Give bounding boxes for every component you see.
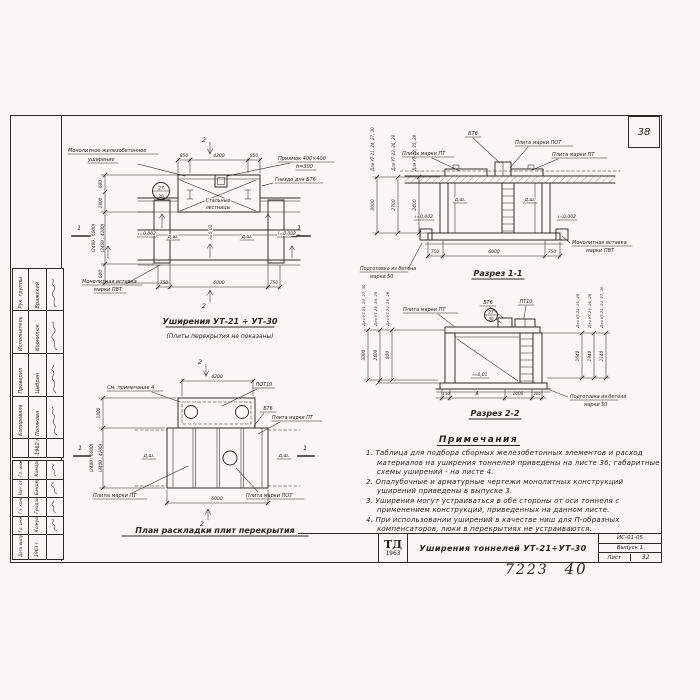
label-pit: Приямок 400×400: [278, 156, 326, 162]
label-socket: Гнездо для БТ6: [275, 177, 316, 183]
label-base-line1: Подготовка из бетона: [570, 394, 626, 400]
dim-left-paren-2: (3400 ; 4200): [100, 223, 105, 252]
dim-bot-A: А: [474, 391, 479, 397]
layout-dimensions: 4200 1800 (2400 ; 6000) (3400 ; 4200) 60…: [89, 374, 270, 505]
signature-scribble: [47, 397, 63, 440]
notes-heading: Примечания: [366, 427, 591, 446]
label-pt-many: Плиты марки ПТ: [93, 493, 137, 499]
stamp-empty-cell: [47, 439, 63, 457]
label-stairs-line2: лестницы: [205, 206, 231, 211]
section1-structure: [400, 162, 620, 244]
td-logo-letters: ТД: [384, 539, 402, 550]
dim-height-tunnels-1: Для УТ-21, 24, 27, 30: [370, 127, 375, 172]
dim-left-600-top: 600: [98, 180, 103, 188]
label-insert-line2: марки ПВТ: [94, 287, 123, 293]
label-widening-line1: Монолитное железобетонное: [68, 148, 146, 154]
label-insert-line2: марки ПВТ: [586, 248, 615, 254]
note-item-3: 3. Уширения могут устраиваться в обе сто…: [366, 497, 662, 516]
dim-left-paren-1: (2400 ; 6000): [89, 443, 94, 472]
section-1-marker-right: 1: [297, 224, 301, 232]
dim-left-2: 2400: [373, 349, 378, 360]
section1-title-group: Разрез 1-1: [472, 269, 524, 279]
label-joint-right: д.ш.: [241, 235, 253, 240]
sheet-number-row: Лист 32: [599, 552, 661, 562]
dim-right-tunnels-1: Для УТ-22, 25, 28: [575, 293, 580, 329]
stamp-table-lower: Дата выпуска Гл. инж. пр. Гл. конструкто…: [12, 460, 64, 560]
stamp-role: Гл. инженер: [13, 461, 28, 480]
label-joint-left: д.ш.: [167, 235, 179, 240]
plan-widening-drawing: 27 30 850 4200 850 600 1800 (2400 ; 6000…: [60, 118, 365, 348]
stamp-table-upper: Копировала Проверил Исполнитель Рук. гру…: [12, 268, 64, 458]
dim-left-3: 800: [385, 351, 390, 359]
label-pt-many: Плиты марки ПТ: [402, 151, 446, 157]
label-widening-line2: уширение: [87, 157, 115, 163]
dim-left-paren-1: (2400 ; 6000): [91, 223, 96, 252]
label-joint-right: д.ш.: [524, 198, 536, 203]
sheet-number: 32: [630, 554, 662, 561]
stamp-role: Копировала: [13, 397, 28, 440]
layout-structure: [135, 398, 300, 488]
section-1-1-drawing: Для УТ-21, 24, 27, 30 Для УТ-23, 26, 29 …: [360, 113, 660, 288]
label-joint-left: д.ш.: [143, 454, 155, 459]
stamp-name: Комаровский: [29, 461, 45, 480]
label-pot10: ПОТ10: [256, 382, 272, 388]
section-2-marker-top: 2: [198, 358, 202, 366]
label-joint-left: д.ш.: [454, 198, 466, 203]
detail-ref-top: 27: [158, 186, 164, 192]
dim-s1-6000: 6000: [488, 249, 500, 255]
label-joint-right: д.ш.: [278, 454, 290, 459]
label-insert-line1: Монолитная вставка: [82, 279, 137, 285]
signature-scribble: [47, 517, 63, 536]
page-number: 40: [565, 560, 588, 578]
section-1-marker-right: 1: [303, 444, 307, 452]
label-pot: Плита марки ПОТ: [246, 493, 293, 499]
dim-height-2: 2700: [391, 199, 397, 211]
stamp-name: Гродзинский: [29, 498, 45, 517]
dim-height-tunnels-2: Для УТ-23, 26, 29: [391, 135, 396, 172]
section-1-marker-left: 1: [78, 444, 82, 452]
note-item-4: 4. При использовании уширений в качестве…: [366, 516, 662, 535]
dim-height-1: 3000: [370, 199, 376, 211]
drawing-sheet: 38 27 30: [0, 0, 700, 700]
plan-title-group: Уширения УТ-21 ÷ УТ-30 (Плиты перекрытия…: [163, 317, 278, 340]
section-2-2-drawing: 27 30 Для УТ-21, 24, 27, 30 Для УТ-23, 2…: [360, 288, 660, 428]
stamp-name: Бандер: [29, 480, 45, 499]
section2-detail-reference: 27 30: [485, 309, 502, 324]
dim-bot-750-left: 750: [160, 280, 168, 285]
signature-scribble: [47, 354, 63, 397]
notes-block: Примечания 1. Таблица для подбора сборны…: [366, 427, 662, 535]
dim-bot-150: 150: [442, 391, 450, 396]
dim-bot-6000: 6000: [213, 280, 225, 286]
signature-scribble: [47, 480, 63, 499]
note-item-2: 2. Опалубочные и арматурные чертежи моно…: [366, 478, 662, 497]
label-pt10: ПТ10: [520, 299, 533, 305]
layout-section-markers: 2 2 1 1: [74, 358, 314, 528]
label-pt: Плита марки ПТ: [403, 307, 446, 313]
stamp-name: Цыбрин: [29, 354, 45, 397]
stamp-role: Проверил: [13, 354, 28, 397]
stamp-role: Нач. отдела: [13, 480, 28, 499]
label-slope-left: i=0,002: [415, 214, 433, 220]
section2-title: Разрез 2-2: [471, 409, 520, 418]
label-insert-line1: Монолитная вставка: [572, 240, 627, 246]
stamp-name: Полякова: [29, 397, 45, 440]
stamp-date-label: Дата выпуска: [13, 535, 28, 559]
label-slope: i=0,01: [472, 372, 487, 378]
td-logo: ТД 1963: [379, 534, 408, 562]
plan-subtitle: (Плиты перекрытия не показаны): [166, 333, 273, 340]
dim-bot-750-right: 750: [270, 280, 278, 285]
label-pit-h: h=300: [296, 164, 313, 170]
stamp-name: Корнилюк: [29, 312, 45, 355]
issue-number: Выпуск 1: [599, 543, 661, 553]
dim-right-tunnels-2: Для УТ-23, 26, 29: [587, 293, 592, 329]
stamp-role: Гл. инж. пр.: [13, 517, 28, 536]
document-code: ИС-01-05: [599, 534, 661, 543]
dim-left-1800: 1800: [96, 407, 101, 418]
layout-labels: См. примечание 4 ПОТ10 БТ6 Плита марки П…: [93, 382, 322, 499]
signature-scribble: [47, 498, 63, 517]
dim-right-2: 1940: [587, 350, 592, 361]
label-pt: Плита марки ПТ: [272, 415, 314, 421]
dim-top-850-left: 850: [180, 153, 188, 158]
plan-structure-lines: [106, 175, 301, 265]
label-pot: Плита марки ПОТ: [515, 140, 562, 146]
section-2-marker-bottom: 2: [202, 302, 206, 310]
doc-number: 7223: [505, 562, 549, 578]
label-slope-main: i=0,01: [208, 224, 214, 239]
section-1-marker-left: 1: [77, 224, 81, 232]
dim-right-tunnels-3: Для УТ-21, 24, 27, 30: [599, 286, 604, 329]
label-pt: Плита марки ПТ: [552, 152, 595, 158]
label-stairs-line1: Стальные: [206, 198, 231, 204]
dim-bot-1000: 1000: [513, 391, 524, 396]
section2-structure: [376, 318, 550, 392]
detail-ref-bottom: 30: [488, 317, 494, 322]
plan-title: Уширения УТ-21 ÷ УТ-30: [163, 317, 278, 326]
sheet-title: Уширения тоннелей УТ-21÷УТ-30: [408, 534, 598, 562]
signature-scribble: [47, 312, 63, 355]
titleblock-right: ИС-01-05 Выпуск 1 Лист 32: [598, 534, 661, 562]
handwritten-doc-number: 722340: [505, 560, 588, 578]
plan-detail-reference: 27 30: [153, 183, 170, 201]
label-bt6: БТ6: [468, 131, 478, 137]
label-base-line2: марки 50: [370, 274, 393, 280]
dim-left-tunnels-1: Для УТ-21, 24, 27, 30: [361, 284, 366, 327]
dim-s1-750-left: 750: [431, 249, 439, 254]
stamp-name: Вражский: [29, 269, 45, 312]
label-slope-right: i=0,002: [558, 214, 576, 220]
stamp-name: Кожушкевич: [29, 517, 45, 536]
label-bt6: БТ6: [483, 300, 492, 306]
stamp-role: Рук. группы: [13, 269, 28, 312]
stamp-date: 1962 г.: [29, 439, 45, 457]
plan-dimensions: 850 4200 850 600 1800 (2400 ; 6000) (340…: [91, 153, 282, 289]
sheet-label: Лист: [599, 555, 630, 561]
layout-title-group: План раскладки плит перекрытия: [122, 526, 308, 536]
detail-ref-bottom: 30: [158, 194, 164, 200]
label-slope-right: i=0,002: [278, 231, 296, 237]
dim-top-850-right: 850: [250, 153, 258, 158]
dim-s1-750-right: 750: [548, 249, 556, 254]
dim-bot-300: 300: [533, 391, 541, 396]
slab-layout-plan-drawing: 4200 1800 (2400 ; 6000) (3400 ; 4200) 60…: [60, 352, 365, 542]
stamp-role: Гл. конструктор: [13, 498, 28, 517]
signature-scribble: [47, 269, 63, 312]
plan-labels: Монолитное железобетонное уширение Приям…: [68, 148, 334, 293]
note-item-1: 1. Таблица для подбора сборных железобет…: [366, 449, 662, 478]
dim-bot-6000: 6000: [211, 496, 223, 502]
section-2-marker-top: 2: [202, 136, 206, 144]
dim-right-3: 2140: [599, 350, 604, 361]
dim-left-tunnels-3: Для УТ-22, 25, 28: [385, 291, 390, 327]
section1-dimensions: Для УТ-21, 24, 27, 30 Для УТ-23, 26, 29 …: [370, 127, 562, 258]
dim-left-tunnels-2: Для УТ-23, 26, 29: [373, 291, 378, 327]
dim-left-1800: 1800: [98, 197, 103, 208]
label-bt6: БТ6: [263, 406, 272, 412]
titleblock-extension-line: [298, 533, 378, 534]
stamp-empty-cell: [47, 535, 63, 559]
dim-top-4200: 4200: [211, 374, 223, 380]
signature-scribble: [47, 461, 63, 480]
label-base-line2: марки 50: [584, 402, 607, 408]
dim-left-paren-2: (3400 ; 4200): [98, 443, 103, 472]
stamp-date: 1963 г.: [29, 535, 45, 559]
td-logo-year: 1963: [385, 550, 400, 557]
detail-ref-top: 27: [488, 310, 494, 315]
section2-title-group: Разрез 2-2: [469, 409, 521, 419]
dim-left-600-bottom: 600: [98, 270, 103, 278]
dim-height-3: 2400: [412, 199, 418, 211]
label-slope-left: i=0,002: [138, 231, 156, 237]
titleblock: ТД 1963 Уширения тоннелей УТ-21÷УТ-30 ИС…: [378, 533, 662, 563]
layout-title: План раскладки плит перекрытия: [135, 526, 294, 535]
section1-labels: Плиты марки ПТ БТ6 Плита марки ПОТ Плита…: [360, 131, 632, 280]
dim-top-4200: 4200: [213, 153, 225, 159]
stamp-role: Исполнитель: [13, 312, 28, 355]
dim-right-1: 1640: [575, 350, 580, 361]
stamp-empty-cell: [13, 439, 28, 457]
section1-title: Разрез 1-1: [474, 269, 523, 278]
label-see-note: См. примечание 4: [107, 385, 154, 391]
